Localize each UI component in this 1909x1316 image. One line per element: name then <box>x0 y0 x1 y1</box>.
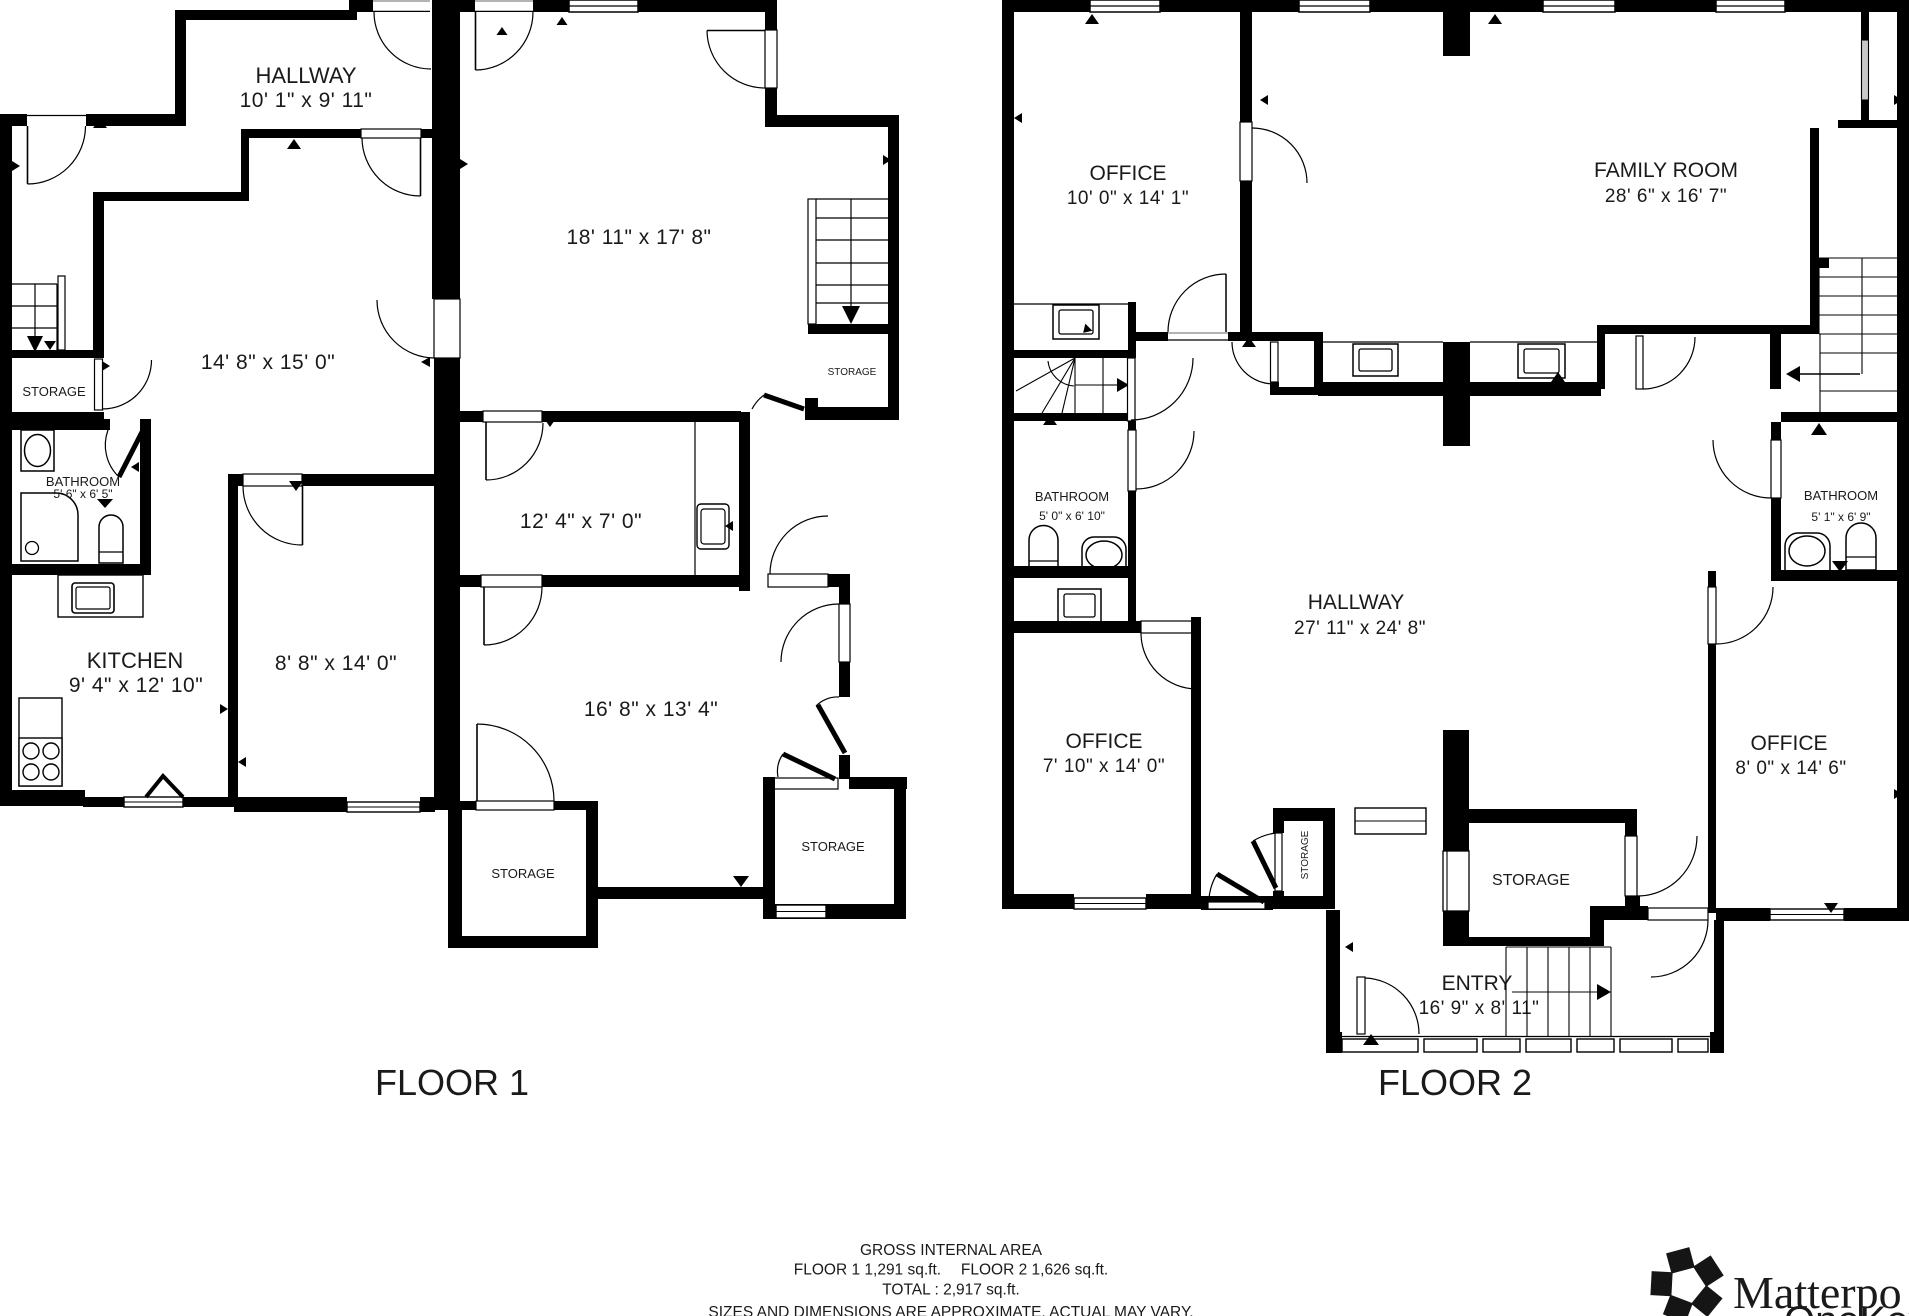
svg-text:5' 1" x 6' 9": 5' 1" x 6' 9" <box>1811 510 1870 524</box>
svg-text:STORAGE: STORAGE <box>1300 830 1311 879</box>
svg-text:SIZES AND DIMENSIONS ARE APPRO: SIZES AND DIMENSIONS ARE APPROXIMATE, AC… <box>708 1304 1193 1316</box>
svg-text:STORAGE: STORAGE <box>22 384 86 399</box>
svg-text:8' 8" x 14' 0": 8' 8" x 14' 0" <box>275 652 397 675</box>
svg-text:FLOOR 2: FLOOR 2 <box>1378 1062 1532 1103</box>
svg-text:HALLWAY: HALLWAY <box>1308 591 1404 614</box>
svg-text:14' 8" x 15' 0": 14' 8" x 15' 0" <box>201 351 335 374</box>
svg-text:8' 0" x 14' 6": 8' 0" x 14' 6" <box>1735 758 1846 779</box>
svg-text:7' 10" x 14' 0": 7' 10" x 14' 0" <box>1043 756 1165 777</box>
svg-text:10' 1" x 9' 11": 10' 1" x 9' 11" <box>240 89 373 112</box>
svg-text:FAMILY ROOM: FAMILY ROOM <box>1594 159 1738 182</box>
svg-text:OFFICE: OFFICE <box>1066 730 1143 753</box>
svg-text:BATHROOM: BATHROOM <box>1804 488 1878 503</box>
svg-text:10' 0" x 14' 1": 10' 0" x 14' 1" <box>1067 188 1189 209</box>
svg-text:STORAGE: STORAGE <box>828 367 877 378</box>
svg-text:28' 6" x 16' 7": 28' 6" x 16' 7" <box>1605 186 1727 207</box>
svg-text:STORAGE: STORAGE <box>801 839 865 854</box>
svg-text:GROSS INTERNAL AREA: GROSS INTERNAL AREA <box>860 1242 1043 1259</box>
svg-text:16' 8" x 13' 4": 16' 8" x 13' 4" <box>584 698 718 721</box>
svg-text:5' 6" x 6' 5": 5' 6" x 6' 5" <box>53 487 112 501</box>
svg-text:STORAGE: STORAGE <box>491 866 555 881</box>
svg-text:12' 4" x 7' 0": 12' 4" x 7' 0" <box>520 510 642 533</box>
svg-text:18' 11" x 17' 8": 18' 11" x 17' 8" <box>567 226 712 249</box>
svg-text:BATHROOM: BATHROOM <box>1035 489 1109 504</box>
svg-text:FLOOR 1: FLOOR 1 <box>375 1062 529 1103</box>
svg-text:27' 11" x 24' 8": 27' 11" x 24' 8" <box>1294 618 1426 639</box>
svg-text:HALLWAY: HALLWAY <box>255 63 356 88</box>
svg-text:16' 9" x 8' 11": 16' 9" x 8' 11" <box>1419 998 1540 1019</box>
svg-text:STORAGE: STORAGE <box>1492 872 1570 889</box>
svg-text:FLOOR 1 1,291 sq.ft. FLOOR 2: FLOOR 1 1,291 sq.ft. FLOOR 2 1,626 sq.ft… <box>794 1262 1108 1279</box>
svg-text:Matterpo: Matterpo <box>1733 1267 1902 1316</box>
svg-text:OFFICE: OFFICE <box>1751 732 1828 755</box>
svg-text:KITCHEN: KITCHEN <box>87 648 184 673</box>
svg-text:TOTAL : 2,917 sq.ft.: TOTAL : 2,917 sq.ft. <box>882 1282 1020 1299</box>
svg-text:ENTRY: ENTRY <box>1442 972 1513 995</box>
svg-text:OFFICE: OFFICE <box>1090 162 1167 185</box>
svg-text:5' 0" x 6' 10": 5' 0" x 6' 10" <box>1039 509 1105 523</box>
svg-text:9' 4" x 12' 10": 9' 4" x 12' 10" <box>69 674 203 697</box>
